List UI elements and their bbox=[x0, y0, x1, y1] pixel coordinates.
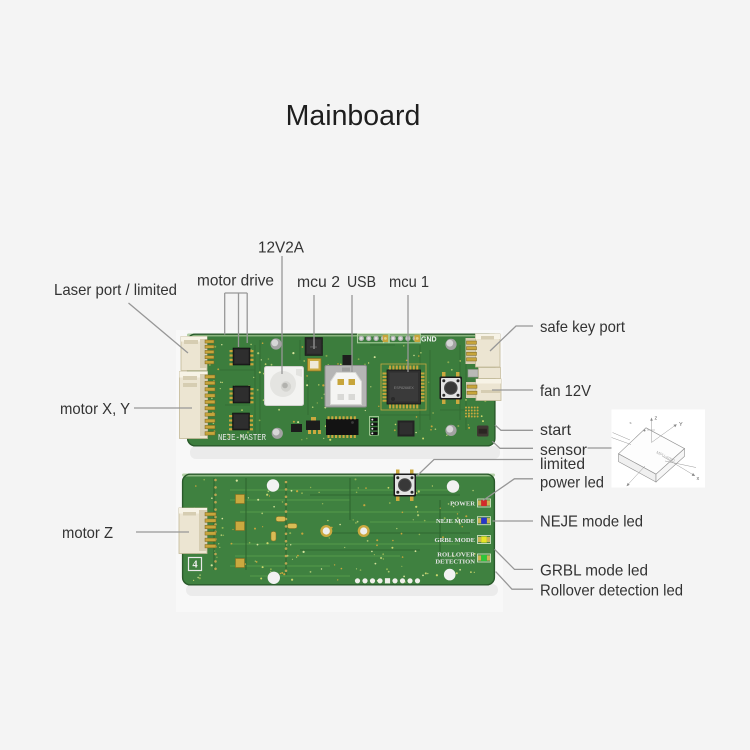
svg-text:Mainboard: Mainboard bbox=[286, 100, 421, 132]
svg-text:DETECTION: DETECTION bbox=[435, 558, 475, 565]
svg-text:z: z bbox=[655, 416, 658, 422]
svg-text:fan 12V: fan 12V bbox=[540, 383, 591, 400]
svg-text:ESP8266EX: ESP8266EX bbox=[394, 386, 415, 390]
svg-text:motor Z: motor Z bbox=[62, 525, 113, 542]
svg-text:motor drive: motor drive bbox=[197, 273, 274, 290]
svg-text:USB: USB bbox=[347, 274, 376, 291]
svg-text:GRBL MODE: GRBL MODE bbox=[435, 537, 476, 544]
svg-text:power led: power led bbox=[540, 475, 604, 492]
svg-text:NEJE-MASTER: NEJE-MASTER bbox=[218, 433, 266, 443]
svg-text:s: s bbox=[630, 420, 632, 425]
svg-text:x: x bbox=[697, 476, 700, 482]
svg-text:Laser port / limited: Laser port / limited bbox=[54, 282, 177, 299]
svg-text:mcu 2: mcu 2 bbox=[297, 274, 340, 291]
svg-text:Rollover detection led: Rollover detection led bbox=[540, 583, 683, 600]
svg-text:Y: Y bbox=[679, 422, 683, 428]
svg-text:POWER: POWER bbox=[450, 500, 475, 507]
svg-text:12V2A: 12V2A bbox=[258, 240, 304, 257]
svg-text:4: 4 bbox=[192, 560, 198, 571]
svg-text:motor X, Y: motor X, Y bbox=[60, 401, 130, 418]
svg-text:GND: GND bbox=[421, 337, 437, 344]
svg-text:mcu 1: mcu 1 bbox=[389, 274, 429, 291]
svg-text:limited: limited bbox=[540, 456, 585, 473]
svg-text:safe key port: safe key port bbox=[540, 319, 626, 336]
svg-text:start: start bbox=[540, 422, 572, 439]
svg-text:GRBL mode led: GRBL mode led bbox=[540, 563, 648, 580]
svg-text:NEJE mode led: NEJE mode led bbox=[540, 514, 643, 531]
svg-text:NEJE MODE: NEJE MODE bbox=[436, 518, 476, 525]
